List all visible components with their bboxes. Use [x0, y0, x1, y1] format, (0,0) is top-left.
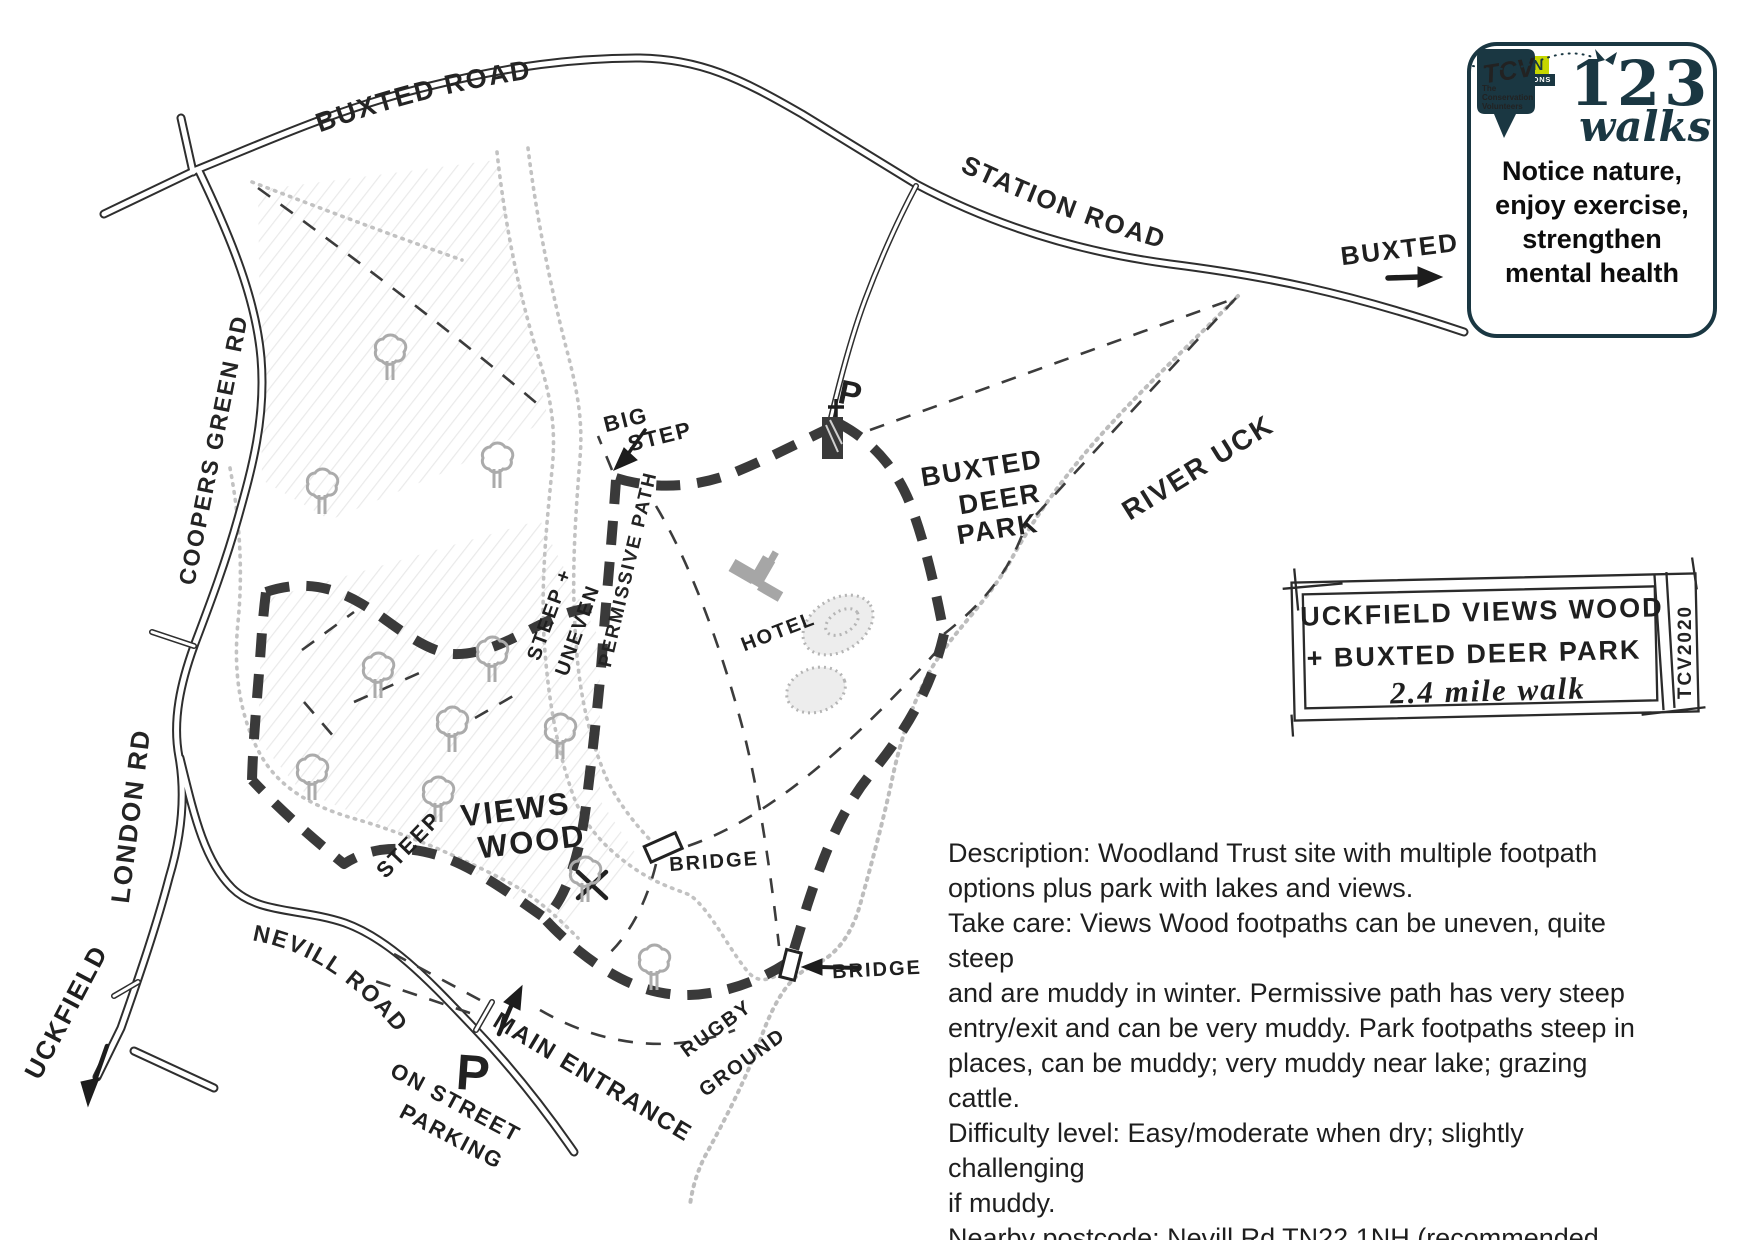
- hotel-label: HOTEL: [738, 608, 818, 656]
- tcv-logo-box: TCV The Conservation Volunteers GREEN CO…: [1467, 42, 1717, 338]
- river-uck-label: RIVER UCK: [1116, 409, 1279, 526]
- tcv-sub-label: Conservation: [1482, 93, 1533, 102]
- buxted-road-label: BUXTED ROAD: [312, 55, 534, 139]
- bridge-icon: [780, 949, 801, 980]
- bridge-label: BRIDGE: [832, 957, 923, 984]
- lake: [781, 583, 884, 720]
- buxted-arrow: [1388, 267, 1442, 287]
- tcv-sub-label: Volunteers: [1482, 102, 1523, 111]
- coopers-london-road-path: [97, 171, 262, 1077]
- london-rd-label: LONDON RD: [105, 727, 156, 905]
- walk-description: Description: Woodland Trust site with mu…: [948, 836, 1664, 1240]
- nevill-road-label: NEVILL ROAD: [251, 920, 414, 1038]
- logo-walks: walks: [1561, 108, 1711, 146]
- title-line3: 2.4 mile walk: [1389, 670, 1586, 710]
- butterfly-trail-icon: [1471, 46, 1621, 74]
- title-line2: + BUXTED DEER PARK: [1306, 635, 1641, 674]
- title-line1: UCKFIELD VIEWS WOOD: [1300, 592, 1664, 632]
- bridge-label: BRIDGE: [669, 848, 760, 876]
- coopers-green-rd-label: COOPERS GREEN RD: [174, 312, 253, 587]
- hotel-icon: [728, 536, 799, 601]
- walk-map-page: P P BUXTED ROAD STATION ROAD COOPERS GRE…: [0, 0, 1754, 1240]
- logo-tagline: Notice nature, enjoy exercise, strengthe…: [1483, 154, 1701, 290]
- buxted-dest-label: BUXTED: [1339, 227, 1461, 271]
- title-box: UCKFIELD VIEWS WOOD + BUXTED DEER PARK 2…: [1282, 557, 1706, 736]
- tcv-sub-label: The: [1482, 84, 1497, 93]
- title-credit: TCV2020: [1675, 605, 1696, 699]
